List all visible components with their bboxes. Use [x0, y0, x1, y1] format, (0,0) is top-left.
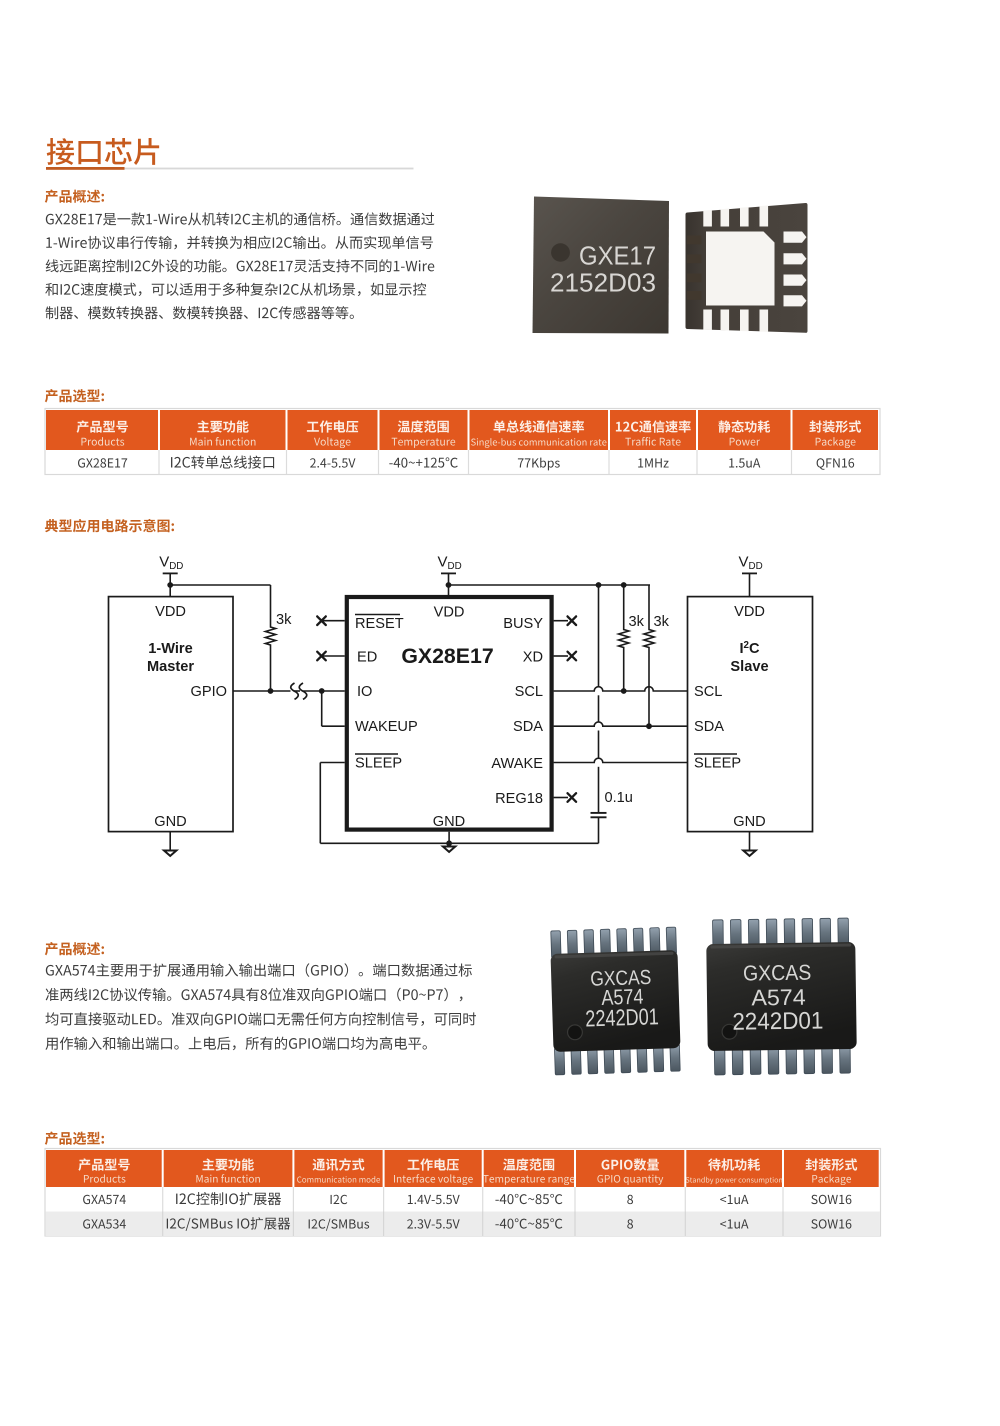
svg-text:Master: Master: [147, 659, 194, 675]
svg-text:GND: GND: [154, 814, 186, 830]
svg-text:SLEEP: SLEEP: [355, 756, 402, 772]
svg-text:BUSY: BUSY: [503, 616, 543, 632]
svg-text:Slave: Slave: [730, 659, 768, 675]
svg-text:WAKEUP: WAKEUP: [355, 719, 418, 735]
svg-text:0.1u: 0.1u: [605, 790, 633, 806]
svg-text:1-Wire: 1-Wire: [148, 641, 192, 657]
svg-text:SCL: SCL: [515, 684, 543, 700]
svg-text:3k: 3k: [276, 612, 292, 628]
svg-text:XD: XD: [523, 650, 543, 666]
svg-text:2242D01: 2242D01: [732, 1007, 823, 1035]
svg-text:GXE17: GXE17: [579, 241, 656, 271]
svg-text:ED: ED: [357, 650, 377, 666]
svg-text:SDA: SDA: [694, 719, 724, 735]
svg-text:AWAKE: AWAKE: [491, 756, 543, 772]
svg-text:GXCAS: GXCAS: [743, 961, 812, 986]
svg-text:I2C: I2C: [739, 640, 760, 657]
svg-text:RESET: RESET: [355, 616, 404, 632]
svg-text:GND: GND: [433, 814, 465, 830]
svg-text:2242D01: 2242D01: [585, 1003, 659, 1031]
svg-text:GX28E17: GX28E17: [401, 644, 493, 668]
svg-text:VDD: VDD: [734, 604, 765, 620]
svg-text:REG18: REG18: [495, 791, 543, 807]
svg-text:3k: 3k: [654, 614, 670, 630]
svg-text:VDD: VDD: [155, 604, 186, 620]
svg-text:VDD: VDD: [434, 605, 465, 621]
svg-text:IO: IO: [357, 684, 372, 700]
svg-text:SCL: SCL: [694, 684, 722, 700]
svg-text:2152D03: 2152D03: [550, 268, 656, 298]
svg-text:SLEEP: SLEEP: [694, 756, 741, 772]
svg-text:A574: A574: [751, 985, 806, 1011]
svg-text:GPIO: GPIO: [191, 684, 228, 700]
svg-text:GND: GND: [733, 814, 765, 830]
svg-text:SDA: SDA: [513, 719, 543, 735]
svg-text:3k: 3k: [629, 614, 645, 630]
